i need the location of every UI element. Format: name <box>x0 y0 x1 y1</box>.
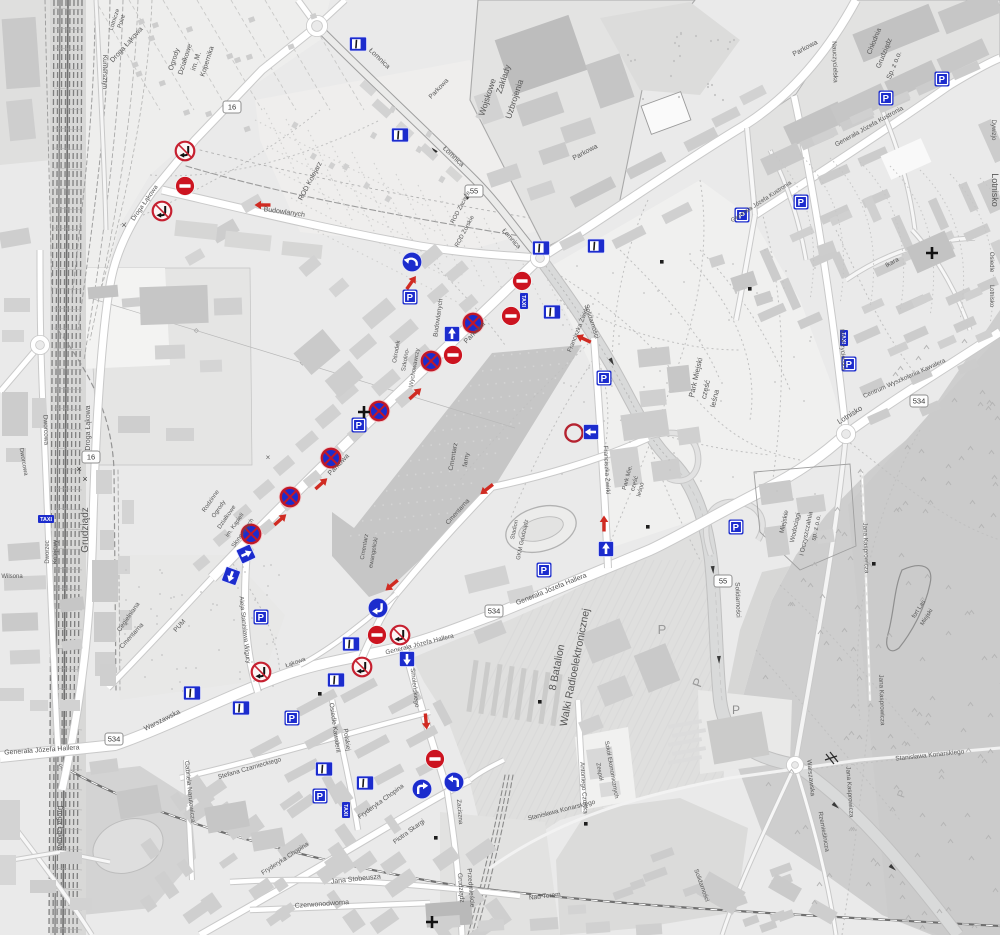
svg-text:16: 16 <box>228 103 236 112</box>
svg-text:P: P <box>732 703 740 717</box>
svg-text:Kolejowy: Kolejowy <box>53 540 59 564</box>
svg-text:534: 534 <box>108 735 121 744</box>
svg-text:Dworzec: Dworzec <box>45 540 51 563</box>
svg-text:Dywizjo: Dywizjo <box>990 120 996 141</box>
svg-text:Grudziądz: Grudziądz <box>80 507 91 553</box>
svg-text:55: 55 <box>719 577 727 586</box>
svg-text:534: 534 <box>913 397 926 406</box>
svg-text:16: 16 <box>87 453 95 462</box>
svg-text:×: × <box>121 220 126 230</box>
svg-text:×: × <box>82 474 87 484</box>
svg-text:Droga Łąkowa: Droga Łąkowa <box>56 805 63 850</box>
svg-text:×: × <box>76 464 81 474</box>
svg-text:×: × <box>266 453 271 462</box>
svg-text:Osiedle: Osiedle <box>988 252 994 273</box>
svg-text:Wilsona: Wilsona <box>1 574 23 580</box>
svg-text:Lotnisko: Lotnisko <box>990 173 1000 207</box>
svg-text:P: P <box>658 622 667 637</box>
svg-text:534: 534 <box>488 607 501 616</box>
svg-text:Nauczycielska: Nauczycielska <box>830 41 838 83</box>
svg-text:Kuntersztyn: Kuntersztyn <box>101 55 108 90</box>
svg-text:Droga Łąkowa: Droga Łąkowa <box>85 405 92 450</box>
svg-text:Lotnisko: Lotnisko <box>988 285 994 308</box>
svg-text:Dworcowa: Dworcowa <box>41 415 49 446</box>
svg-text:Solidarności: Solidarności <box>733 582 741 618</box>
